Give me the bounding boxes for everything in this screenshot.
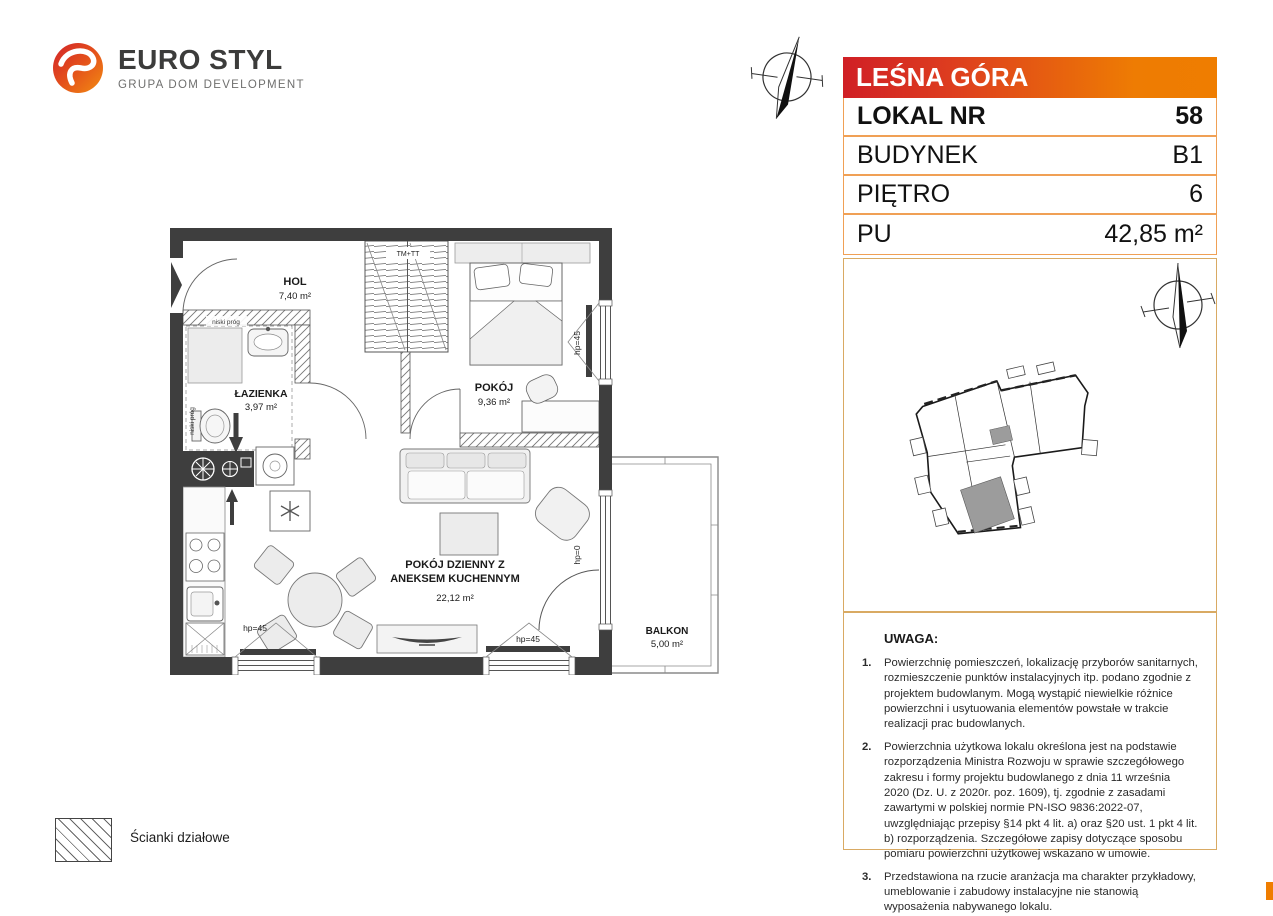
niski-prog-label: niski próg (212, 319, 240, 326)
room-label-salon-2: ANEKSEM KUCHENNYM (390, 573, 520, 585)
keyplan-box (843, 258, 1217, 612)
kitchen (183, 487, 225, 657)
table-row-pu: PU 42,85 m² (844, 215, 1216, 254)
room-label-lazienka: ŁAZIENKA (234, 388, 287, 400)
project-title: LEŚNA GÓRA (843, 57, 1217, 98)
armchair (531, 482, 595, 545)
dining-set (253, 544, 377, 654)
dining-table (288, 573, 342, 627)
hp0-label: hp=0 (572, 545, 582, 564)
row-value: B1 (1172, 141, 1203, 170)
room-area-lazienka: 3,97 m² (245, 402, 277, 413)
hp45-label-window1: hp=45 (243, 623, 267, 633)
legend-label: Ścianki działowe (130, 830, 230, 845)
row-label: LOKAL NR (857, 102, 986, 131)
brand-tagline: GRUPA DOM DEVELOPMENT (118, 79, 305, 91)
unit-info-table: LEŚNA GÓRA LOKAL NR 58 BUDYNEK B1 PIĘTRO… (843, 57, 1217, 255)
hp45-label-window2: hp=45 (516, 634, 540, 644)
row-label: BUDYNEK (857, 141, 978, 170)
room-area-hol: 7,40 m² (279, 291, 311, 302)
building-keyplan (896, 361, 1118, 556)
note-item-3: 3. Przedstawiona na rzucie aranżacja ma … (860, 870, 1198, 916)
coffee-table (440, 513, 498, 555)
table-row-lokal: LOKAL NR 58 (844, 98, 1216, 137)
north-compass-icon (729, 16, 844, 138)
room-label-pokoj: POKÓJ (475, 381, 514, 394)
eurostyl-swirl-icon (52, 42, 104, 94)
living-room-furniture (377, 449, 594, 664)
toilet (200, 409, 230, 443)
row-label: PU (857, 220, 892, 249)
room-area-balkon: 5,00 m² (651, 639, 683, 650)
niski-prog-label-vertical: niski próg (189, 407, 196, 435)
desk (522, 401, 599, 432)
table-row-pietro: PIĘTRO 6 (844, 176, 1216, 215)
table-row-budynek: BUDYNEK B1 (844, 137, 1216, 176)
floorplan-drawing: TM+TT (170, 225, 745, 675)
bedroom-door-arc (410, 389, 460, 439)
hp45-label-bedroom: hp=45 (572, 331, 582, 355)
entrance-door-arc (183, 259, 237, 313)
north-compass-icon (1133, 255, 1223, 355)
tv-cabinet (377, 625, 477, 653)
floorplan-sheet: { "brand": {"name": "EURO STYL", "taglin… (0, 0, 1273, 900)
notes-box: UWAGA: 1. Powierzchnię pomieszczeń, loka… (843, 612, 1217, 850)
room-area-pokoj: 9,36 m² (478, 397, 510, 408)
bathroom-door-arc (310, 383, 366, 439)
headboard-shelf (455, 243, 590, 263)
entrance-door-leaf (171, 262, 182, 308)
row-value: 42,85 m² (1104, 220, 1203, 249)
tm-tt-label: TM+TT (397, 251, 420, 258)
page-corner-mark (1266, 882, 1273, 900)
brand-name: EURO STYL (118, 46, 305, 74)
row-value: 6 (1189, 180, 1203, 209)
note-item-1: 1. Powierzchnię pomieszczeń, lokalizację… (860, 656, 1198, 733)
room-label-hol: HOL (283, 276, 307, 288)
room-label-balkon: BALKON (646, 626, 689, 637)
partition-wall-swatch (55, 818, 112, 862)
room-label-salon-1: POKÓJ DZIENNY Z (405, 558, 505, 571)
balcony-door-arc (539, 570, 599, 630)
stove (186, 533, 224, 581)
notes-title: UWAGA: (884, 631, 1198, 646)
wardrobe: TM+TT (365, 230, 448, 352)
room-area-salon: 22,12 m² (436, 593, 474, 604)
note-item-2: 2. Powierzchnia użytkowa lokalu określon… (860, 740, 1198, 863)
washing-machine (256, 447, 294, 485)
brand-logo: EURO STYL GRUPA DOM DEVELOPMENT (52, 42, 305, 94)
shower-tray (188, 328, 242, 383)
row-label: PIĘTRO (857, 180, 950, 209)
row-value: 58 (1175, 102, 1203, 131)
